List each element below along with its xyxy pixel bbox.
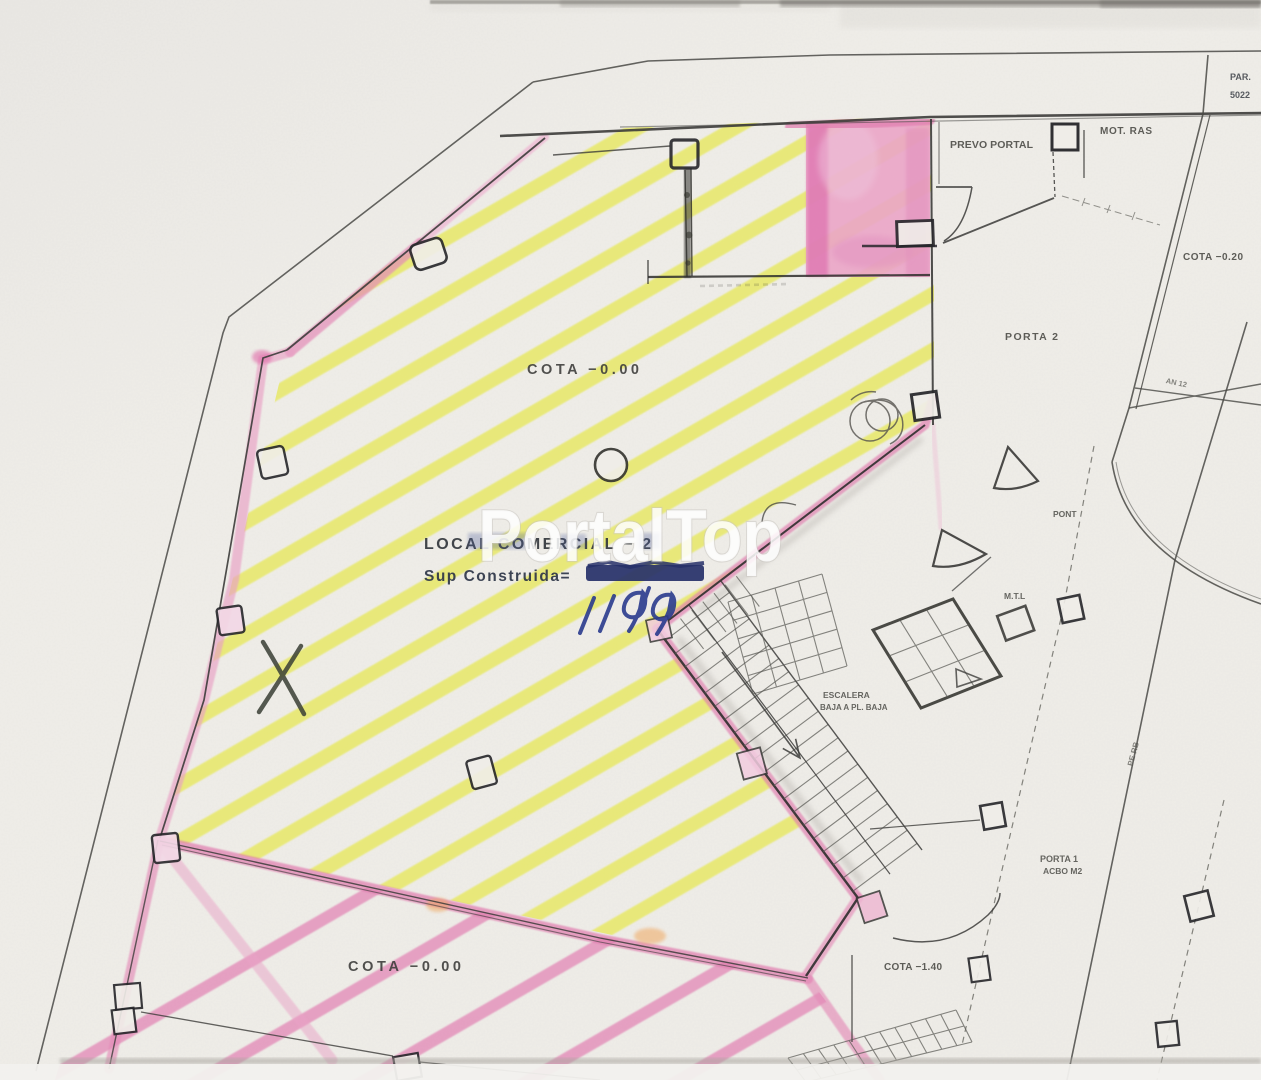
svg-text:5022: 5022 [1230, 90, 1250, 100]
svg-text:BAJA A PL. BAJA: BAJA A PL. BAJA [820, 703, 888, 712]
svg-text:PortalTop: PortalTop [478, 496, 783, 577]
svg-text:ACBO M2: ACBO M2 [1043, 866, 1082, 876]
svg-text:M.T.L: M.T.L [1004, 591, 1025, 601]
svg-text:PAR.: PAR. [1230, 72, 1251, 82]
svg-text:PONT: PONT [1053, 509, 1077, 519]
svg-text:COTA −0.20: COTA −0.20 [1183, 252, 1243, 263]
svg-text:PORTA 2: PORTA 2 [1005, 331, 1058, 343]
svg-text:MOT. RAS: MOT. RAS [1100, 126, 1152, 137]
svg-text:COTA −1.40: COTA −1.40 [884, 962, 942, 973]
svg-text:PREVO PORTAL: PREVO PORTAL [950, 139, 1034, 151]
svg-text:COTA −0.00: COTA −0.00 [527, 362, 640, 378]
svg-text:ESCALERA: ESCALERA [823, 690, 870, 700]
svg-text:COTA −0.00: COTA −0.00 [348, 959, 462, 975]
svg-text:PORTA 1: PORTA 1 [1040, 854, 1078, 864]
